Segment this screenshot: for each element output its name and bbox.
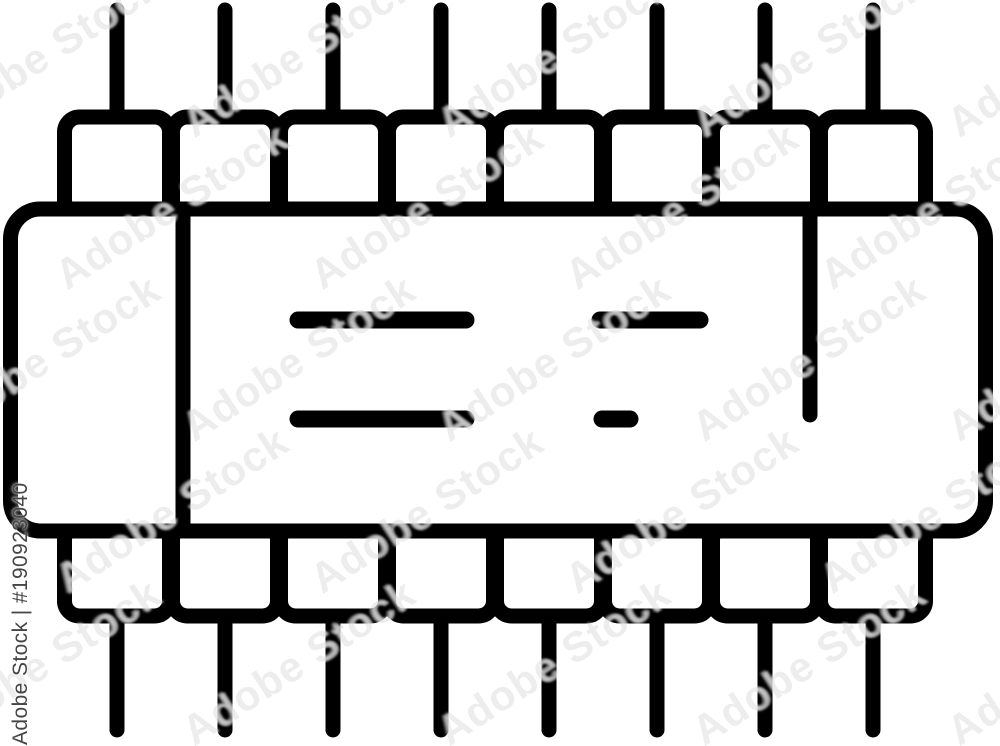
chip-pin-top [389,10,494,215]
chip-pin-top [605,10,710,215]
chip-pin-top [497,10,602,215]
chip-pin-bottom [389,525,494,730]
chip-pin-bottom [173,525,278,730]
chip-body [11,209,986,531]
chip-pin-top [173,10,278,215]
chip-pin-bottom [65,525,170,730]
chip-pin-top [281,10,386,215]
chip-pin-bottom [497,525,602,730]
chip-pin-bottom [281,525,386,730]
watermark-label: Adobe Stock | #190923040 [9,482,33,745]
microchip-icon [0,0,1000,746]
chip-top-pins [65,10,926,215]
chip-pin-bottom [605,525,710,730]
chip-pin-top [713,10,818,215]
chip-pin-top [821,10,926,215]
chip-pin-bottom [713,525,818,730]
chip-pin-bottom [821,525,926,730]
chip-bottom-pins [65,525,926,730]
stock-image-canvas: Adobe StockAdobe StockAdobe StockAdobe S… [0,0,1000,746]
chip-pin-top [65,10,170,215]
